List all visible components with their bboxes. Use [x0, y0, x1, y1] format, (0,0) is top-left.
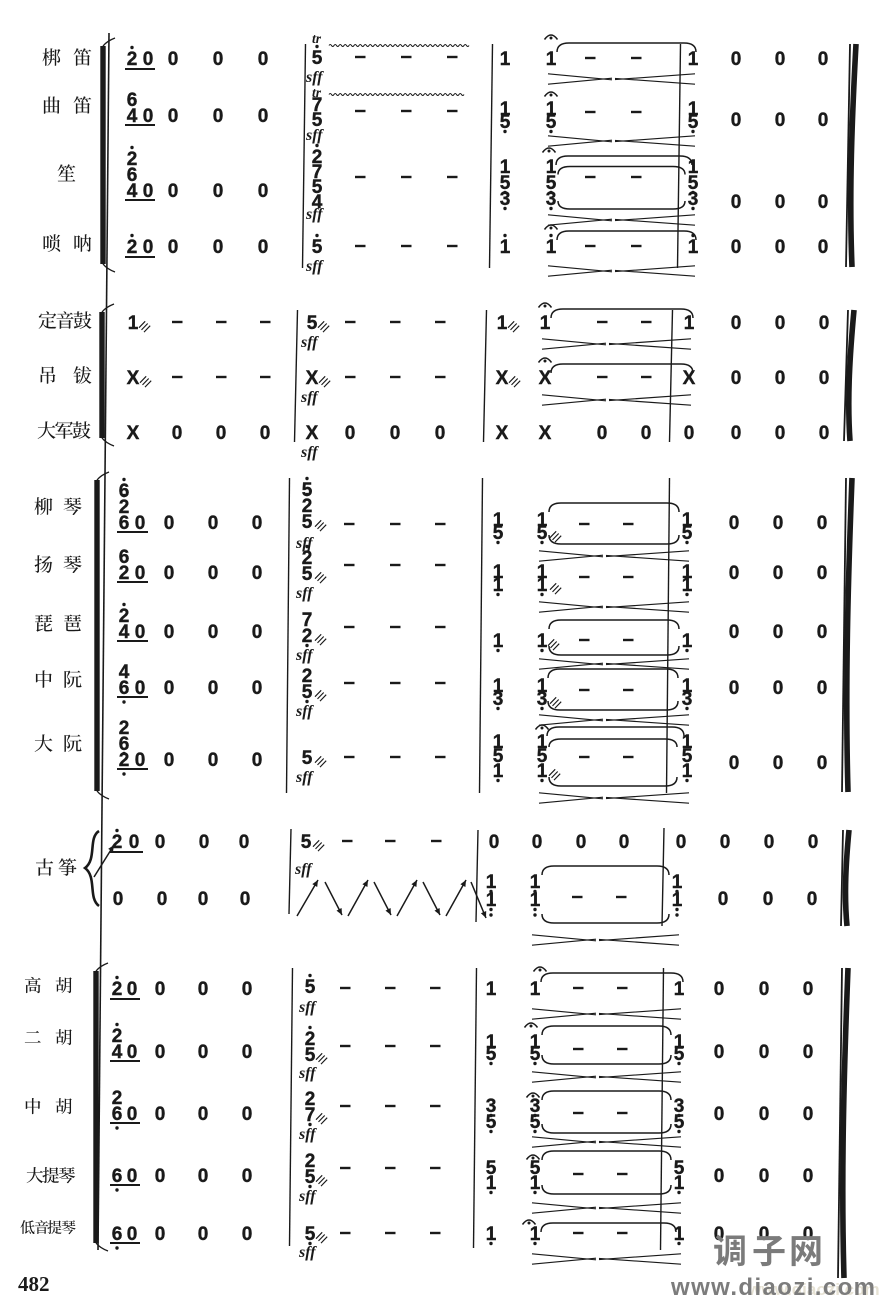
svg-text:0: 0	[714, 1224, 725, 1245]
svg-text:0: 0	[213, 237, 224, 258]
svg-text:0: 0	[252, 563, 263, 584]
svg-text:X: X	[496, 423, 509, 444]
svg-text:0: 0	[127, 1104, 138, 1125]
svg-text:0: 0	[729, 678, 740, 699]
svg-text:1: 1	[530, 979, 541, 1000]
svg-text:0: 0	[168, 106, 179, 127]
svg-text:0: 0	[803, 1166, 814, 1187]
svg-text:6: 6	[112, 1166, 123, 1187]
svg-text:0: 0	[818, 110, 829, 131]
svg-text:0: 0	[242, 979, 253, 1000]
svg-text:0: 0	[729, 622, 740, 643]
svg-text:6: 6	[112, 1224, 123, 1245]
svg-text:6: 6	[119, 513, 130, 534]
svg-text:0: 0	[155, 1042, 166, 1063]
svg-text:X: X	[306, 423, 319, 444]
svg-text:0: 0	[773, 753, 784, 774]
svg-text:0: 0	[208, 622, 219, 643]
svg-text:0: 0	[168, 181, 179, 202]
svg-text:0: 0	[155, 1166, 166, 1187]
svg-text:0: 0	[155, 832, 166, 853]
svg-text:0: 0	[213, 106, 224, 127]
svg-text:0: 0	[817, 753, 828, 774]
svg-text:1: 1	[688, 237, 699, 258]
svg-text:0: 0	[260, 423, 271, 444]
svg-text:0: 0	[155, 1224, 166, 1245]
svg-text:0: 0	[819, 313, 830, 334]
svg-text:sff: sff	[298, 1065, 317, 1082]
svg-text:sff: sff	[298, 1188, 317, 1205]
svg-text:0: 0	[817, 622, 828, 643]
svg-text:sff: sff	[305, 206, 324, 223]
svg-text:0: 0	[759, 1042, 770, 1063]
svg-text:sff: sff	[300, 444, 319, 461]
svg-text:1: 1	[684, 313, 695, 334]
svg-text:0: 0	[808, 832, 819, 853]
svg-text:X: X	[683, 368, 696, 389]
svg-text:0: 0	[239, 832, 250, 853]
svg-text:0: 0	[135, 678, 146, 699]
svg-text:sff: sff	[295, 585, 314, 602]
svg-text:0: 0	[258, 49, 269, 70]
svg-text:sff: sff	[298, 999, 317, 1016]
svg-text:0: 0	[143, 237, 154, 258]
svg-text:2: 2	[119, 750, 130, 771]
svg-text:0: 0	[819, 368, 830, 389]
svg-text:X: X	[127, 423, 140, 444]
svg-text:0: 0	[258, 106, 269, 127]
svg-text:0: 0	[252, 678, 263, 699]
svg-text:6: 6	[112, 1104, 123, 1125]
svg-text:5: 5	[302, 748, 313, 769]
svg-text:sff: sff	[295, 647, 314, 664]
svg-text:0: 0	[819, 423, 830, 444]
svg-text:0: 0	[168, 49, 179, 70]
svg-text:5: 5	[312, 237, 323, 258]
svg-text:1: 1	[674, 979, 685, 1000]
svg-text:0: 0	[252, 513, 263, 534]
svg-text:0: 0	[168, 237, 179, 258]
svg-text:0: 0	[803, 979, 814, 1000]
svg-text:0: 0	[258, 237, 269, 258]
svg-text:0: 0	[489, 832, 500, 853]
svg-text:0: 0	[199, 832, 210, 853]
svg-text:sff: sff	[300, 334, 319, 351]
svg-text:0: 0	[775, 237, 786, 258]
svg-text:0: 0	[155, 1104, 166, 1125]
svg-text:4: 4	[127, 181, 138, 202]
svg-text:5: 5	[302, 512, 313, 533]
svg-text:0: 0	[775, 423, 786, 444]
svg-text:0: 0	[198, 1104, 209, 1125]
svg-text:0: 0	[390, 423, 401, 444]
svg-text:0: 0	[729, 753, 740, 774]
svg-text:2: 2	[127, 237, 138, 258]
svg-text:0: 0	[135, 750, 146, 771]
svg-text:X: X	[539, 423, 552, 444]
svg-text:X: X	[539, 368, 552, 389]
svg-text:0: 0	[208, 513, 219, 534]
svg-text:0: 0	[775, 110, 786, 131]
svg-text:0: 0	[164, 563, 175, 584]
svg-text:0: 0	[773, 622, 784, 643]
svg-text:0: 0	[803, 1042, 814, 1063]
svg-text:4: 4	[112, 1042, 123, 1063]
svg-text:0: 0	[773, 678, 784, 699]
svg-text:5: 5	[307, 313, 318, 334]
svg-text:0: 0	[127, 1224, 138, 1245]
svg-text:0: 0	[242, 1042, 253, 1063]
svg-text:0: 0	[135, 513, 146, 534]
svg-text:0: 0	[759, 1104, 770, 1125]
svg-text:0: 0	[731, 313, 742, 334]
svg-text:5: 5	[302, 564, 313, 585]
svg-text:0: 0	[731, 368, 742, 389]
svg-text:0: 0	[731, 192, 742, 213]
svg-text:1: 1	[540, 313, 551, 334]
svg-text:0: 0	[164, 622, 175, 643]
svg-text:2: 2	[112, 979, 123, 1000]
svg-text:0: 0	[714, 1104, 725, 1125]
svg-text:0: 0	[127, 979, 138, 1000]
svg-text:0: 0	[731, 49, 742, 70]
svg-text:0: 0	[172, 423, 183, 444]
svg-text:0: 0	[164, 750, 175, 771]
svg-text:0: 0	[135, 622, 146, 643]
svg-text:0: 0	[532, 832, 543, 853]
svg-text:1: 1	[497, 313, 508, 334]
svg-text:0: 0	[619, 832, 630, 853]
svg-text:2: 2	[119, 563, 130, 584]
svg-text:0: 0	[731, 237, 742, 258]
svg-text:sff: sff	[294, 861, 313, 878]
svg-text:4: 4	[127, 106, 138, 127]
svg-text:X: X	[496, 368, 509, 389]
svg-text:0: 0	[213, 181, 224, 202]
svg-text:0: 0	[198, 889, 209, 910]
svg-text:sff: sff	[298, 1244, 317, 1261]
svg-text:0: 0	[198, 1166, 209, 1187]
svg-text:1: 1	[500, 49, 511, 70]
svg-text:0: 0	[731, 423, 742, 444]
svg-text:1: 1	[486, 979, 497, 1000]
svg-text:0: 0	[258, 181, 269, 202]
svg-text:0: 0	[435, 423, 446, 444]
svg-text:0: 0	[775, 49, 786, 70]
svg-text:0: 0	[576, 832, 587, 853]
svg-text:sff: sff	[295, 769, 314, 786]
svg-text:0: 0	[714, 1166, 725, 1187]
svg-text:sff: sff	[305, 258, 324, 275]
svg-text:0: 0	[155, 979, 166, 1000]
svg-text:0: 0	[164, 513, 175, 534]
svg-text:0: 0	[775, 192, 786, 213]
svg-text:0: 0	[216, 423, 227, 444]
svg-text:0: 0	[252, 750, 263, 771]
svg-text:sff: sff	[295, 703, 314, 720]
svg-text:0: 0	[763, 889, 774, 910]
svg-text:0: 0	[676, 832, 687, 853]
svg-text:1: 1	[128, 313, 139, 334]
svg-text:0: 0	[818, 237, 829, 258]
svg-text:0: 0	[143, 181, 154, 202]
svg-text:0: 0	[729, 563, 740, 584]
svg-text:0: 0	[240, 889, 251, 910]
svg-text:0: 0	[764, 832, 775, 853]
svg-text:1: 1	[688, 49, 699, 70]
svg-text:0: 0	[242, 1166, 253, 1187]
svg-text:0: 0	[157, 889, 168, 910]
svg-text:0: 0	[759, 1166, 770, 1187]
svg-text:1: 1	[500, 237, 511, 258]
svg-text:sff: sff	[298, 1126, 317, 1143]
svg-text:1: 1	[546, 49, 557, 70]
svg-text:0: 0	[773, 563, 784, 584]
svg-text:0: 0	[252, 622, 263, 643]
svg-text:tr: tr	[312, 31, 322, 46]
svg-text:5: 5	[301, 832, 312, 853]
svg-text:X: X	[306, 368, 319, 389]
svg-text:0: 0	[198, 1042, 209, 1063]
svg-text:482: 482	[18, 1272, 50, 1296]
svg-text:0: 0	[143, 49, 154, 70]
svg-text:sff: sff	[305, 69, 324, 86]
svg-text:0: 0	[164, 678, 175, 699]
svg-text:5: 5	[305, 977, 316, 998]
svg-text:0: 0	[208, 563, 219, 584]
svg-text:sff: sff	[305, 127, 324, 144]
svg-text:0: 0	[729, 513, 740, 534]
svg-text:5: 5	[305, 1045, 316, 1066]
svg-text:0: 0	[208, 750, 219, 771]
svg-text:0: 0	[127, 1042, 138, 1063]
svg-text:2: 2	[127, 49, 138, 70]
svg-text:0: 0	[714, 979, 725, 1000]
svg-text:0: 0	[803, 1104, 814, 1125]
svg-text:0: 0	[759, 1224, 770, 1245]
svg-text:0: 0	[135, 563, 146, 584]
svg-text:0: 0	[817, 563, 828, 584]
svg-text:0: 0	[127, 1166, 138, 1187]
svg-text:0: 0	[198, 1224, 209, 1245]
svg-text:0: 0	[641, 423, 652, 444]
svg-text:0: 0	[213, 49, 224, 70]
svg-text:0: 0	[684, 423, 695, 444]
svg-text:sff: sff	[300, 389, 319, 406]
svg-text:0: 0	[731, 110, 742, 131]
svg-text:0: 0	[807, 889, 818, 910]
svg-text:0: 0	[597, 423, 608, 444]
svg-text:0: 0	[817, 513, 828, 534]
svg-text:0: 0	[242, 1224, 253, 1245]
svg-text:0: 0	[714, 1042, 725, 1063]
svg-text:2: 2	[112, 832, 123, 853]
svg-text:www.diaozi.com: www.diaozi.com	[670, 1274, 876, 1301]
svg-text:0: 0	[143, 106, 154, 127]
svg-text:0: 0	[775, 368, 786, 389]
svg-text:0: 0	[773, 513, 784, 534]
svg-text:4: 4	[119, 622, 130, 643]
svg-text:0: 0	[817, 678, 828, 699]
svg-text:5: 5	[312, 48, 323, 69]
svg-text:0: 0	[720, 832, 731, 853]
svg-text:6: 6	[119, 678, 130, 699]
svg-text:0: 0	[129, 832, 140, 853]
svg-text:0: 0	[818, 49, 829, 70]
svg-text:1: 1	[546, 237, 557, 258]
svg-text:0: 0	[759, 979, 770, 1000]
svg-text:0: 0	[818, 192, 829, 213]
svg-text:0: 0	[113, 889, 124, 910]
svg-text:0: 0	[208, 678, 219, 699]
svg-text:0: 0	[242, 1104, 253, 1125]
svg-text:0: 0	[345, 423, 356, 444]
svg-text:0: 0	[198, 979, 209, 1000]
svg-text:0: 0	[775, 313, 786, 334]
svg-text:X: X	[127, 368, 140, 389]
svg-text:0: 0	[718, 889, 729, 910]
